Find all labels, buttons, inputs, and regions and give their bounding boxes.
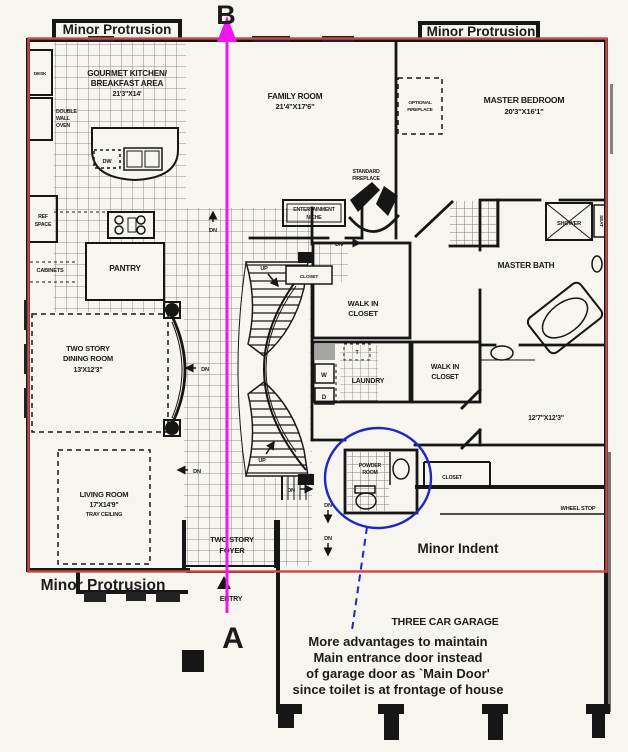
wheel-stop-label: WHEEL STOP <box>561 506 596 512</box>
minor-indent: Minor Indent <box>418 541 499 556</box>
living-room-dim: 17'X14'9" <box>90 502 119 509</box>
minor-protrusion-bottom-left: Minor Protrusion <box>41 577 166 594</box>
dn-label: DN <box>201 367 209 373</box>
walk-in-closet-upper-label: WALK IN <box>348 299 379 308</box>
kitchen-dim: 21'3"X14' <box>113 91 143 98</box>
living-room-label: LIVING ROOM <box>80 490 129 499</box>
ref-space-label: SPACE <box>35 222 52 228</box>
dn-label: DN <box>193 469 201 475</box>
section-label-b: B <box>216 0 236 30</box>
powder-room-label: ROOM <box>362 470 377 476</box>
foyer-label: FOYER <box>219 546 245 555</box>
laundry-label: LAUNDRY <box>352 378 385 385</box>
note-line: Main entrance door instead <box>313 650 482 665</box>
dining-label: DINING ROOM <box>63 354 113 363</box>
oven-label: DOUBLE <box>56 109 77 115</box>
washer-label: W <box>321 373 327 379</box>
dn-label: DN <box>324 503 332 509</box>
floor-plan-page: GOURMET KITCHEN/ BREAKFAST AREA 21'3"X14… <box>0 0 628 752</box>
oven-label: OVEN <box>56 123 70 129</box>
garage-label: THREE CAR GARAGE <box>391 616 498 628</box>
entertainment-niche-label: NICHE <box>306 215 322 221</box>
minor-protrusion-top-left: Minor Protrusion <box>63 22 172 37</box>
dn-label: DN <box>287 488 295 494</box>
optional-fireplace-label: OPTIONAL <box>408 100 431 106</box>
desk-label: DESK <box>34 71 47 77</box>
standard-fireplace-label: FIREPLACE <box>352 176 380 182</box>
shower-label: SHOWER <box>557 221 581 227</box>
family-room-dim: 21'4"X17'6" <box>275 102 315 111</box>
note-line: of garage door as `Main Door' <box>306 666 490 681</box>
minor-protrusion-top-right: Minor Protrusion <box>427 24 536 39</box>
dn-label: DN <box>335 242 343 248</box>
dn-label: DN <box>209 228 217 234</box>
walk-in-closet-lower-label: CLOSET <box>431 374 459 381</box>
entertainment-niche-label: ENTERTAINMENT <box>293 207 335 213</box>
pantry-label: PANTRY <box>109 264 141 273</box>
standard-fireplace-label: STANDARD <box>352 169 380 175</box>
dn-label: DN <box>324 536 332 542</box>
kitchen-label: GOURMET KITCHEN/ <box>87 69 168 78</box>
master-bedroom-label: MASTER BEDROOM <box>484 95 565 105</box>
dining-dim: 13'X12'3" <box>74 367 103 374</box>
note-line: since toilet is at frontage of house <box>293 682 504 697</box>
walk-in-closet-upper-label: CLOSET <box>348 309 378 318</box>
up-label: UP <box>258 458 266 464</box>
master-bedroom-dim: 20'3"X16'1" <box>504 107 544 116</box>
stairs-closet-label: CLOSET <box>300 274 319 280</box>
foyer-label: TWO STORY <box>210 535 254 544</box>
bedroom2-dim: 12'7"X12'3" <box>528 415 564 422</box>
master-bath-label: MASTER BATH <box>498 261 555 270</box>
dishwasher-label: DW <box>103 159 113 165</box>
dining-label: TWO STORY <box>66 344 110 353</box>
hall-closet-label: CLOSET <box>442 475 463 481</box>
entry-label: ENTRY <box>220 596 243 603</box>
section-label-a: A <box>222 622 244 655</box>
powder-room-label: POWDER <box>359 463 382 469</box>
seat-label: SEAT <box>598 215 604 227</box>
optional-fireplace-label: FIREPLACE <box>407 107 433 113</box>
floor-plan-drawing: GOURMET KITCHEN/ BREAKFAST AREA 21'3"X14… <box>0 0 628 752</box>
up-label: UP <box>260 266 268 272</box>
cabinets-label: CABINETS <box>37 268 64 274</box>
note-line: More advantages to maintain <box>308 634 487 649</box>
family-room-label: FAMILY ROOM <box>268 92 323 101</box>
walk-in-closet-lower-label: WALK IN <box>431 364 459 371</box>
oven-label: WALL <box>56 116 71 122</box>
dryer-label: D <box>322 395 327 401</box>
kitchen-label: BREAKFAST AREA <box>91 79 164 88</box>
living-room-ceiling: TRAY CEILING <box>86 512 122 518</box>
ref-space-label: REF <box>38 214 48 220</box>
